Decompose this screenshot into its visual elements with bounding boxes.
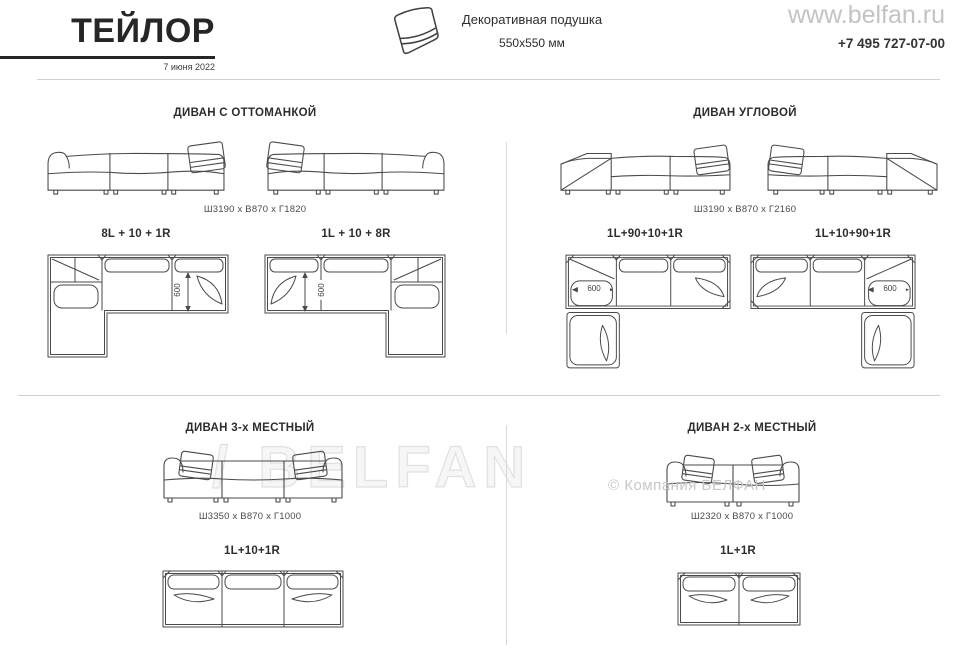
seat-depth-label: 600	[874, 284, 906, 294]
three-seat-front-drawing	[160, 448, 346, 504]
ottoman-top-view-left-drawing	[45, 252, 231, 360]
section-corner: ДИВАН УГЛОВОЙ Ш3190 x В870 x Г2160 1L+90…	[520, 100, 950, 392]
website-url: www.belfan.ru	[788, 1, 945, 30]
section-ottoman-title: ДИВАН С ОТТОМАНКОЙ	[30, 107, 460, 119]
three-seat-top-view-drawing	[160, 568, 346, 630]
seat-depth-label: 600	[317, 280, 327, 300]
config-label-1l-10-90-1r: 1L+10+90+1R	[763, 228, 943, 240]
corner-sofa-front-left-drawing	[555, 140, 735, 196]
corner-top-view-left-drawing	[563, 252, 733, 371]
page-title: ТЕЙЛОР	[0, 12, 215, 51]
seat-depth-label: 600	[173, 280, 183, 300]
config-label-8l-10-1r: 8L + 10 + 1R	[43, 228, 229, 240]
two-seat-top-view-drawing	[675, 570, 803, 628]
section-two-seat: ДИВАН 2-х МЕСТНЫЙ Ш2320 x В870 x Г1000 1…	[520, 405, 950, 645]
config-label-1l-10-1r: 1L+10+1R	[37, 545, 467, 557]
section-corner-title: ДИВАН УГЛОВОЙ	[530, 107, 960, 119]
bottom-vertical-divider	[506, 425, 507, 645]
config-label-1l-10-8r: 1L + 10 + 8R	[263, 228, 449, 240]
page-date: 7 июня 2022	[0, 62, 215, 72]
section-three-seat-title: ДИВАН 3-х МЕСТНЫЙ	[35, 422, 465, 434]
corner-top-view-right-drawing	[748, 252, 918, 371]
section-two-seat-dimensions: Ш2320 x В870 x Г1000	[527, 511, 957, 522]
phone-number: +7 495 727-07-00	[838, 36, 945, 51]
pillow-caption-line1: Декоративная подушка	[448, 12, 616, 27]
section-three-seat-dimensions: Ш3350 x В870 x Г1000	[35, 511, 465, 522]
section-ottoman: ДИВАН С ОТТОМАНКОЙ Ш3190 x В870 x Г1820 …	[30, 100, 460, 392]
decorative-pillow-icon	[388, 3, 446, 57]
corner-sofa-front-right-drawing	[763, 140, 943, 196]
middle-horizontal-divider	[18, 395, 940, 396]
section-two-seat-title: ДИВАН 2-х МЕСТНЫЙ	[537, 422, 961, 434]
catalog-page: / BELFAN © Компания БЕЛФАН ТЕЙЛОР 7 июня…	[0, 0, 961, 648]
seat-depth-label: 600	[578, 284, 610, 294]
ottoman-sofa-front-left-drawing	[43, 138, 229, 196]
pillow-caption-line2: 550x550 мм	[448, 36, 616, 50]
config-label-1l-90-10-1r: 1L+90+10+1R	[555, 228, 735, 240]
title-underline	[0, 56, 215, 59]
header-divider	[37, 79, 940, 80]
section-three-seat: ДИВАН 3-х МЕСТНЫЙ Ш3350 x В870 x Г1000 1…	[30, 405, 460, 645]
top-vertical-divider	[506, 142, 507, 334]
ottoman-sofa-front-right-drawing	[263, 138, 449, 196]
config-label-1l-1r: 1L+1R	[523, 545, 953, 557]
section-ottoman-dimensions: Ш3190 x В870 x Г1820	[40, 204, 470, 215]
section-corner-dimensions: Ш3190 x В870 x Г2160	[530, 204, 960, 215]
copyright-watermark: © Компания БЕЛФАН	[608, 477, 766, 494]
ottoman-top-view-right-drawing	[262, 252, 448, 360]
